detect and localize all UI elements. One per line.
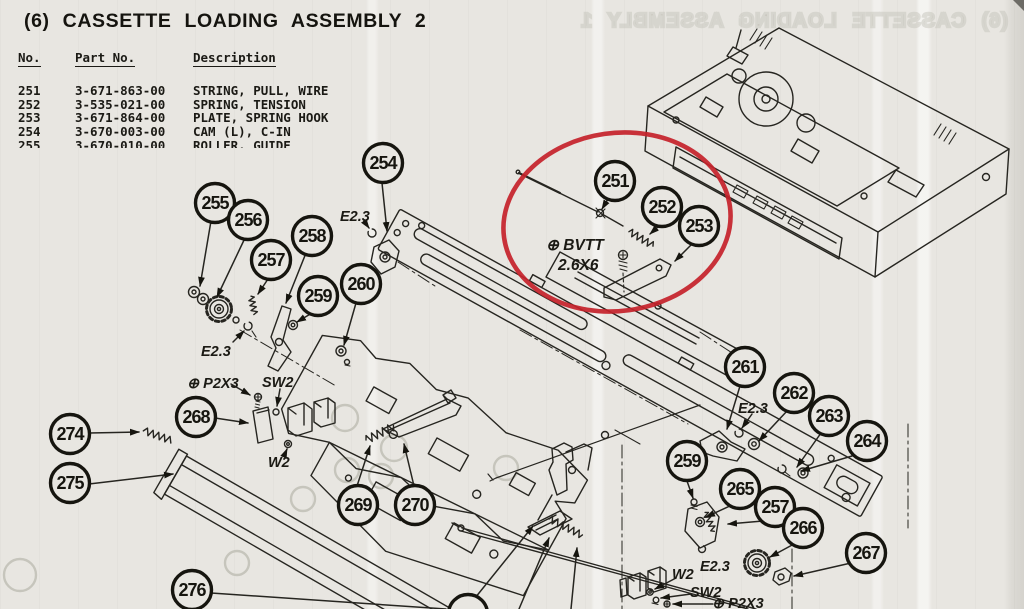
svg-text:267: 267 xyxy=(852,543,880,563)
fastener-label-e23-gear: E2.3 xyxy=(201,344,231,360)
scan-corner-artifact xyxy=(1013,0,1024,11)
part-balloon-270: 270 xyxy=(396,486,435,525)
scanned-page: (6) CASSETTE LOADING ASSEMBLY 2 No. Part… xyxy=(0,0,1024,609)
svg-text:252: 252 xyxy=(648,197,676,217)
part-balloon-partial-bottom xyxy=(449,595,488,609)
part-balloon-266: 266 xyxy=(784,509,823,548)
svg-text:269: 269 xyxy=(344,495,372,515)
svg-text:274: 274 xyxy=(56,424,84,444)
part-balloon-275: 275 xyxy=(51,464,90,503)
bleedthrough-ghosts: (6) CASSETTE LOADING ASSEMBLY 1 xyxy=(4,10,1008,591)
part-balloon-268: 268 xyxy=(177,398,216,437)
svg-text:268: 268 xyxy=(182,407,210,427)
part-balloon-263: 263 xyxy=(810,397,849,436)
part-balloon-269: 269 xyxy=(339,486,378,525)
part-balloon-253: 253 xyxy=(680,207,719,246)
svg-text:255: 255 xyxy=(201,193,229,213)
chassis-drawing xyxy=(246,320,640,609)
fastener-label-e23-right: E2.3 xyxy=(738,401,768,417)
part-balloon-276: 276 xyxy=(173,571,212,609)
svg-text:266: 266 xyxy=(789,518,817,538)
part-balloon-262: 262 xyxy=(775,374,814,413)
part-balloon-259: 259 xyxy=(299,277,338,316)
fastener-label-p2x3-bottom: ⊕ P2X3 xyxy=(712,596,764,609)
svg-text:262: 262 xyxy=(780,383,808,403)
part-balloon-265: 265 xyxy=(721,470,760,509)
part-balloon-259-right: 259 xyxy=(668,442,707,481)
fastener-label-e23-cam: E2.3 xyxy=(340,209,370,225)
svg-text:276: 276 xyxy=(178,580,206,600)
part-balloon-254: 254 xyxy=(364,144,403,183)
fastener-label-w2-left: W2 xyxy=(268,455,290,471)
part-balloon-252: 252 xyxy=(643,188,682,227)
svg-text:251: 251 xyxy=(601,171,629,191)
part-balloon-267: 267 xyxy=(847,534,886,573)
leader-lines xyxy=(89,183,852,609)
part-balloon-258: 258 xyxy=(293,217,332,256)
fastener-label-bvtt: ⊕ BVTT xyxy=(546,237,605,254)
part-balloon-251: 251 xyxy=(596,162,635,201)
part-balloon-260: 260 xyxy=(342,265,381,304)
svg-text:261: 261 xyxy=(731,357,759,377)
svg-text:259: 259 xyxy=(304,286,332,306)
svg-text:263: 263 xyxy=(815,406,843,426)
part-balloon-264: 264 xyxy=(848,422,887,461)
svg-text:257: 257 xyxy=(761,497,789,517)
svg-text:275: 275 xyxy=(56,473,84,493)
fastener-label-sw2-left: SW2 xyxy=(262,375,293,391)
bleed-through-title: (6) CASSETTE LOADING ASSEMBLY 1 xyxy=(580,10,1008,32)
svg-text:259: 259 xyxy=(673,451,701,471)
part-balloon-256: 256 xyxy=(229,201,268,240)
svg-text:256: 256 xyxy=(234,210,262,230)
svg-text:270: 270 xyxy=(401,495,429,515)
exploded-diagram: (6) CASSETTE LOADING ASSEMBLY 1 xyxy=(0,0,1024,609)
svg-text:254: 254 xyxy=(369,153,397,173)
fastener-label-bvtt-size: 2.6X6 xyxy=(557,257,599,274)
svg-text:253: 253 xyxy=(685,216,713,236)
fastener-label-p2x3-left: ⊕ P2X3 xyxy=(187,376,239,392)
part-balloon-257: 257 xyxy=(252,241,291,280)
svg-text:265: 265 xyxy=(726,479,754,499)
fastener-label-e23-bottom: E2.3 xyxy=(700,559,730,575)
svg-text:258: 258 xyxy=(298,226,326,246)
slide-plate-drawing xyxy=(378,203,886,517)
svg-text:264: 264 xyxy=(853,431,881,451)
part-balloons: 254 255 256 257 258 259 260 251 252 253 … xyxy=(51,144,887,609)
fastener-label-w2-bottom: W2 xyxy=(672,567,694,583)
part-balloon-261: 261 xyxy=(726,348,765,387)
svg-text:260: 260 xyxy=(347,274,375,294)
svg-text:257: 257 xyxy=(257,250,285,270)
part-balloon-274: 274 xyxy=(51,415,90,454)
